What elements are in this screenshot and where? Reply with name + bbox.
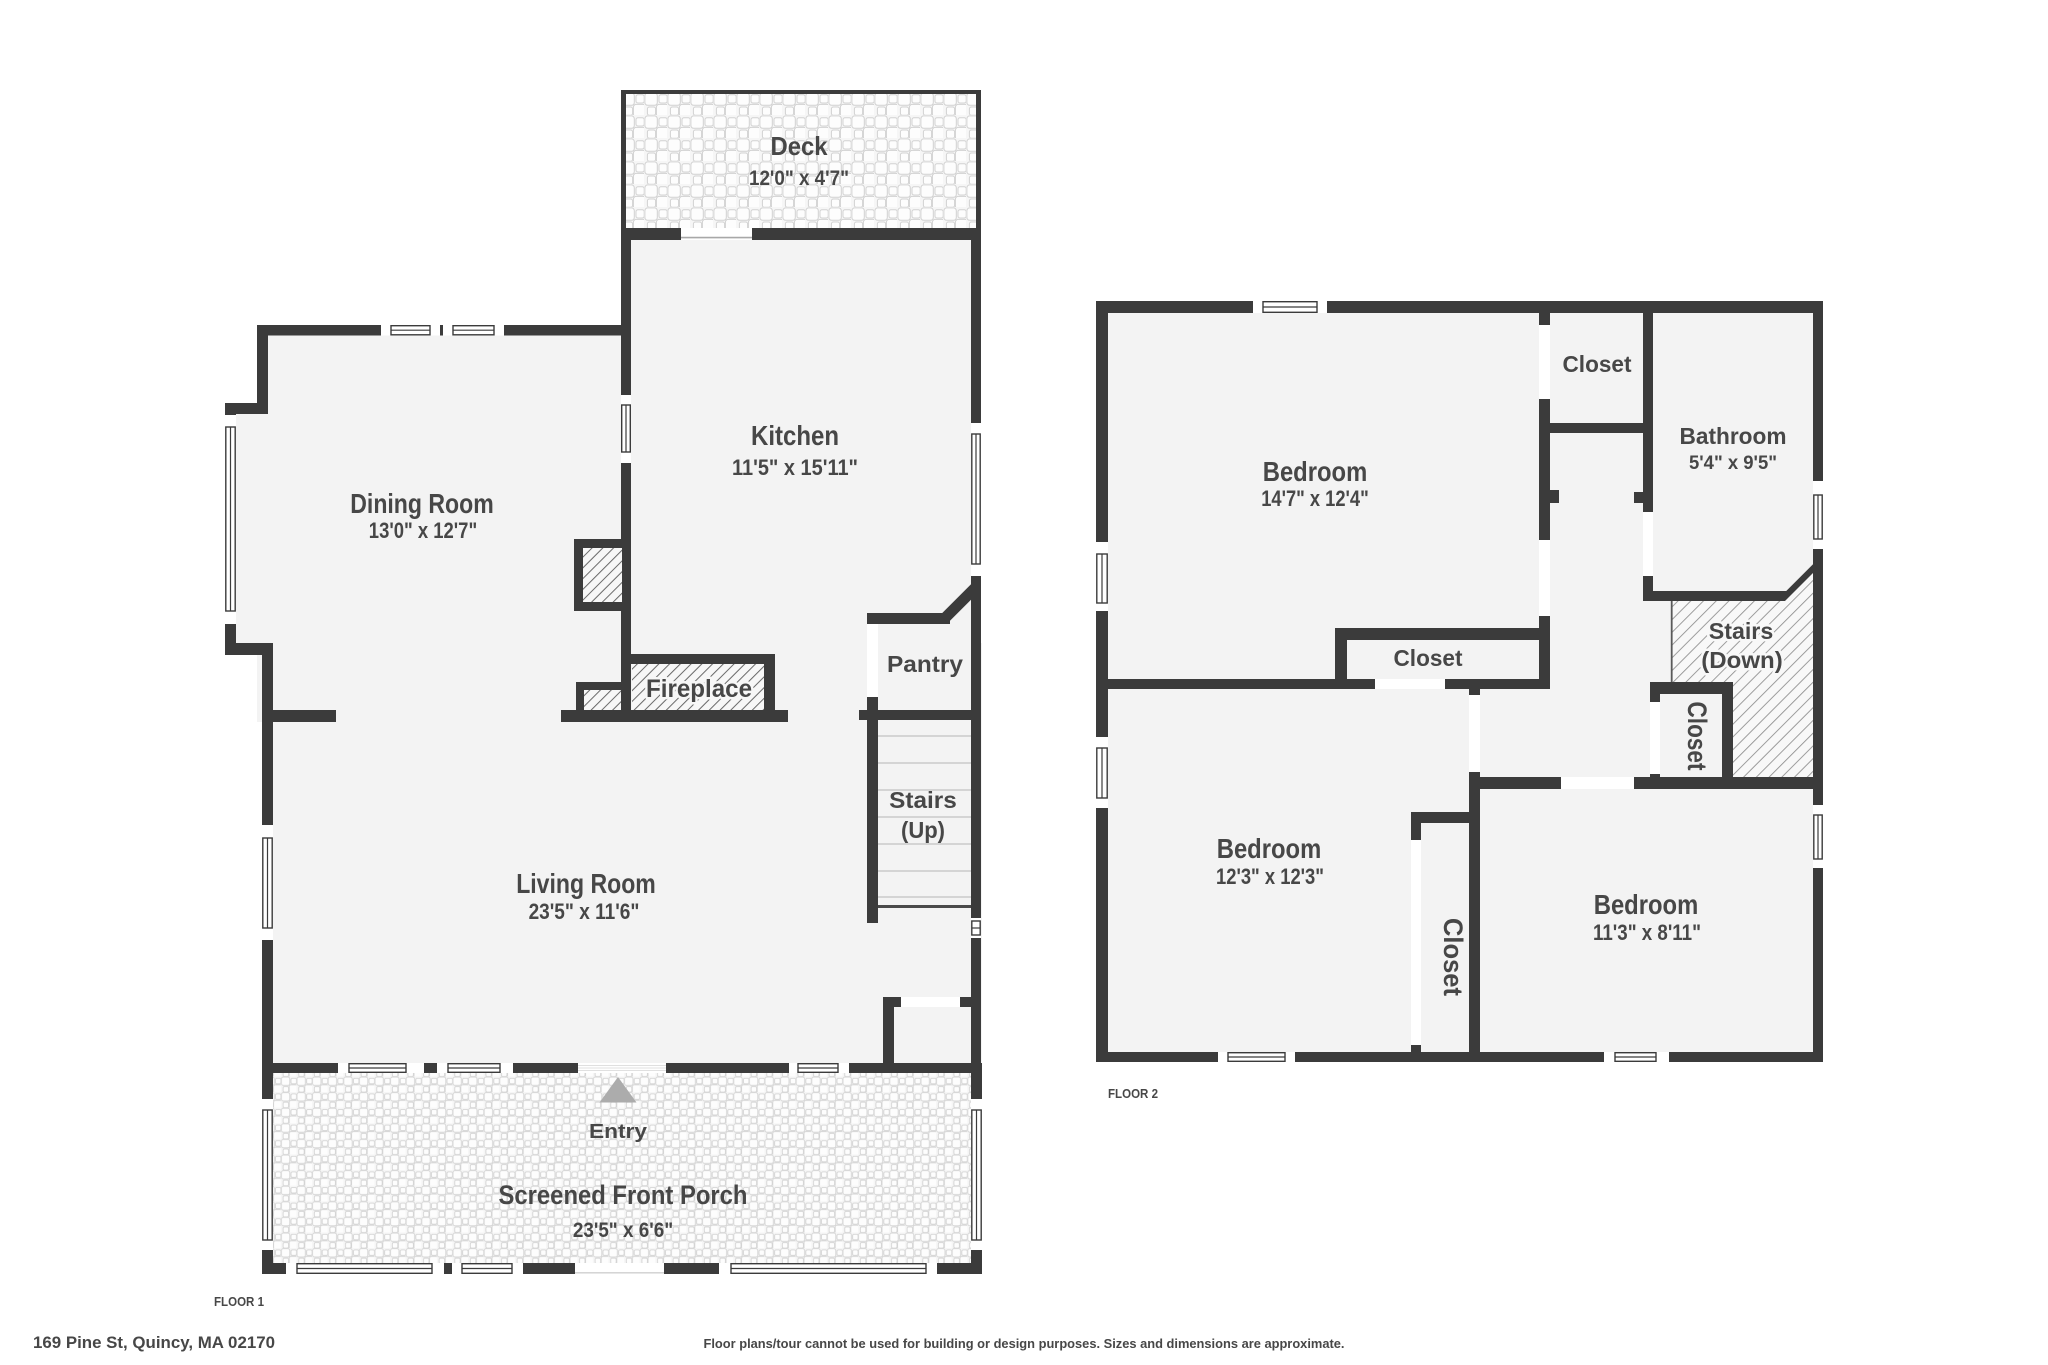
svg-text:Entry: Entry	[589, 1121, 648, 1143]
svg-text:Stairs: Stairs	[1709, 618, 1774, 644]
svg-text:Bathroom: Bathroom	[1680, 423, 1787, 449]
svg-text:169 Pine St, Quincy, MA 02170: 169 Pine St, Quincy, MA 02170	[33, 1333, 275, 1352]
svg-text:FLOOR 1: FLOOR 1	[214, 1295, 264, 1309]
svg-text:Bedroom: Bedroom	[1263, 456, 1368, 487]
svg-text:23'5" x 6'6": 23'5" x 6'6"	[573, 1219, 673, 1242]
svg-text:Screened Front Porch: Screened Front Porch	[499, 1180, 748, 1210]
svg-text:Fireplace: Fireplace	[646, 675, 752, 703]
svg-text:12'0" x 4'7": 12'0" x 4'7"	[749, 167, 849, 190]
svg-text:12'3" x 12'3": 12'3" x 12'3"	[1216, 864, 1324, 889]
svg-text:Living Room: Living Room	[516, 868, 656, 899]
svg-text:Kitchen: Kitchen	[751, 420, 839, 451]
svg-text:Closet: Closet	[1563, 351, 1632, 377]
svg-text:11'3" x 8'11": 11'3" x 8'11"	[1593, 920, 1701, 945]
svg-text:23'5" x 11'6": 23'5" x 11'6"	[529, 899, 640, 924]
svg-text:Stairs: Stairs	[889, 787, 957, 813]
svg-text:(Up): (Up)	[901, 817, 945, 843]
svg-text:Dining Room: Dining Room	[350, 488, 494, 519]
svg-text:Deck: Deck	[771, 131, 828, 161]
svg-text:Bedroom: Bedroom	[1594, 889, 1699, 920]
svg-text:Bedroom: Bedroom	[1217, 833, 1322, 864]
svg-text:Closet: Closet	[1394, 645, 1463, 671]
svg-text:(Down): (Down)	[1701, 647, 1782, 673]
svg-text:Closet: Closet	[1682, 702, 1712, 771]
svg-text:Pantry: Pantry	[887, 651, 963, 677]
svg-text:13'0" x 12'7": 13'0" x 12'7"	[369, 518, 477, 543]
svg-text:11'5" x 15'11": 11'5" x 15'11"	[732, 455, 858, 480]
svg-text:Closet: Closet	[1438, 918, 1468, 996]
svg-text:14'7" x 12'4": 14'7" x 12'4"	[1261, 486, 1369, 511]
svg-text:5'4" x 9'5": 5'4" x 9'5"	[1689, 452, 1777, 474]
svg-text:FLOOR 2: FLOOR 2	[1108, 1087, 1158, 1101]
svg-text:Floor plans/tour cannot be use: Floor plans/tour cannot be used for buil…	[704, 1336, 1345, 1351]
